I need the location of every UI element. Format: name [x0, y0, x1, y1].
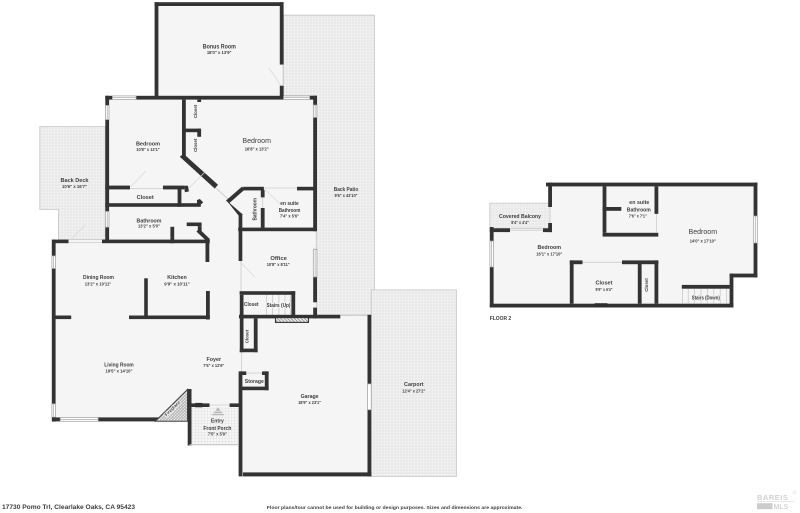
- svg-text:Carport: Carport: [404, 382, 424, 388]
- svg-text:Closet: Closet: [137, 195, 154, 201]
- svg-text:18'0" x 13'9": 18'0" x 13'9": [207, 50, 232, 55]
- svg-text:7'5" x 12'6": 7'5" x 12'6": [203, 363, 224, 368]
- svg-text:Dining Room: Dining Room: [83, 275, 114, 281]
- svg-text:Closet: Closet: [644, 278, 649, 292]
- svg-text:10'6" x 16'7": 10'6" x 16'7": [62, 184, 87, 189]
- svg-text:en suite: en suite: [629, 200, 649, 206]
- svg-text:9'9" x 6'4": 9'9" x 6'4": [596, 287, 613, 292]
- svg-text:18'9" x 23'1": 18'9" x 23'1": [298, 400, 321, 405]
- svg-text:Living Room: Living Room: [104, 362, 134, 368]
- svg-text:8'4" x 4'4": 8'4" x 4'4": [511, 220, 529, 225]
- svg-text:Entry: Entry: [211, 418, 225, 424]
- svg-text:7'6" x 7'1": 7'6" x 7'1": [629, 214, 647, 219]
- svg-text:19'5" x 14'10": 19'5" x 14'10": [106, 369, 133, 374]
- svg-text:Storage: Storage: [245, 379, 264, 385]
- svg-text:Kitchen: Kitchen: [167, 275, 187, 281]
- svg-text:7'4" x 5'6": 7'4" x 5'6": [280, 214, 299, 219]
- svg-text:9'6" x 43'10": 9'6" x 43'10": [335, 193, 358, 198]
- svg-text:BAREIS: BAREIS: [757, 493, 788, 502]
- svg-text:Back Patio: Back Patio: [334, 187, 359, 193]
- svg-text:Floor plans/tour cannot be use: Floor plans/tour cannot be used for buil…: [267, 505, 523, 510]
- svg-text:Closet: Closet: [193, 104, 198, 118]
- svg-text:Bedroom: Bedroom: [538, 245, 562, 251]
- svg-text:en suite: en suite: [280, 201, 299, 207]
- svg-text:13'2" x 5'0": 13'2" x 5'0": [138, 224, 160, 229]
- svg-text:7'5" x 5'9": 7'5" x 5'9": [208, 432, 227, 437]
- svg-text:10'8" x 8'11": 10'8" x 8'11": [267, 262, 290, 267]
- svg-text:Back Deck: Back Deck: [61, 178, 90, 184]
- svg-text:12'4" x 27'2": 12'4" x 27'2": [402, 388, 425, 393]
- svg-text:Bedroom: Bedroom: [689, 229, 718, 236]
- svg-text:Stairs (Up): Stairs (Up): [267, 303, 291, 309]
- svg-text:FLOOR 2: FLOOR 2: [490, 316, 512, 322]
- svg-text:Stairs (Down): Stairs (Down): [692, 295, 720, 301]
- svg-text:Closet: Closet: [596, 281, 613, 287]
- svg-text:Bathroom: Bathroom: [252, 198, 258, 221]
- svg-text:14'0" x 17'10": 14'0" x 17'10": [690, 238, 716, 243]
- svg-text:Closet: Closet: [193, 138, 198, 152]
- svg-text:MLS: MLS: [774, 504, 789, 511]
- svg-text:16'8" x 13'2": 16'8" x 13'2": [245, 147, 269, 152]
- svg-text:Garage: Garage: [301, 394, 319, 400]
- svg-text:10'8" x 13'1": 10'8" x 13'1": [136, 147, 159, 152]
- svg-text:Closet: Closet: [244, 302, 259, 308]
- svg-text:9'9" x 10'11": 9'9" x 10'11": [164, 281, 190, 286]
- svg-text:Bedroom: Bedroom: [242, 138, 271, 145]
- svg-text:17730 Pomo Trl, Clearlake Oaks: 17730 Pomo Trl, Clearlake Oaks, CA 95423: [2, 505, 136, 511]
- svg-text:Bathroom: Bathroom: [627, 208, 651, 214]
- svg-text:16'1" x 17'10": 16'1" x 17'10": [536, 251, 562, 256]
- svg-text:Closet: Closet: [245, 329, 250, 343]
- svg-text:13'2" x 10'11": 13'2" x 10'11": [85, 281, 112, 286]
